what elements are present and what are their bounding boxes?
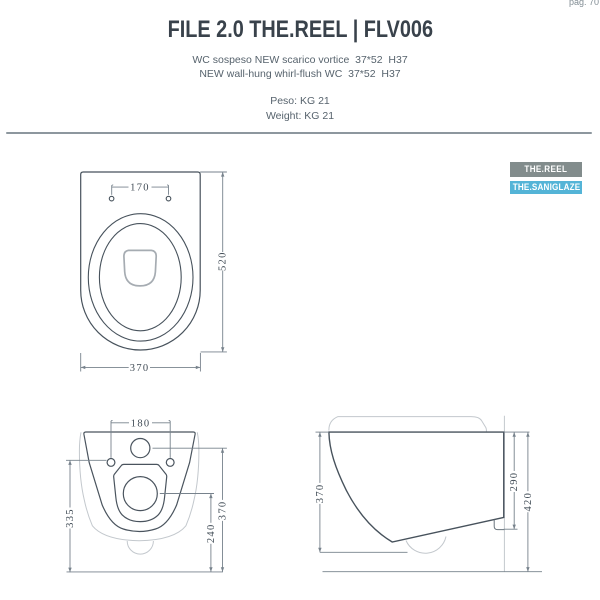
svg-text:180: 180	[131, 418, 151, 429]
svg-text:370: 370	[130, 363, 150, 374]
svg-text:520: 520	[218, 251, 229, 271]
svg-text:240: 240	[206, 523, 217, 543]
svg-text:370: 370	[218, 501, 229, 521]
svg-text:170: 170	[130, 183, 150, 194]
svg-text:290: 290	[509, 472, 520, 492]
svg-text:420: 420	[523, 492, 534, 512]
svg-text:370: 370	[315, 484, 326, 504]
svg-text:335: 335	[65, 508, 76, 528]
